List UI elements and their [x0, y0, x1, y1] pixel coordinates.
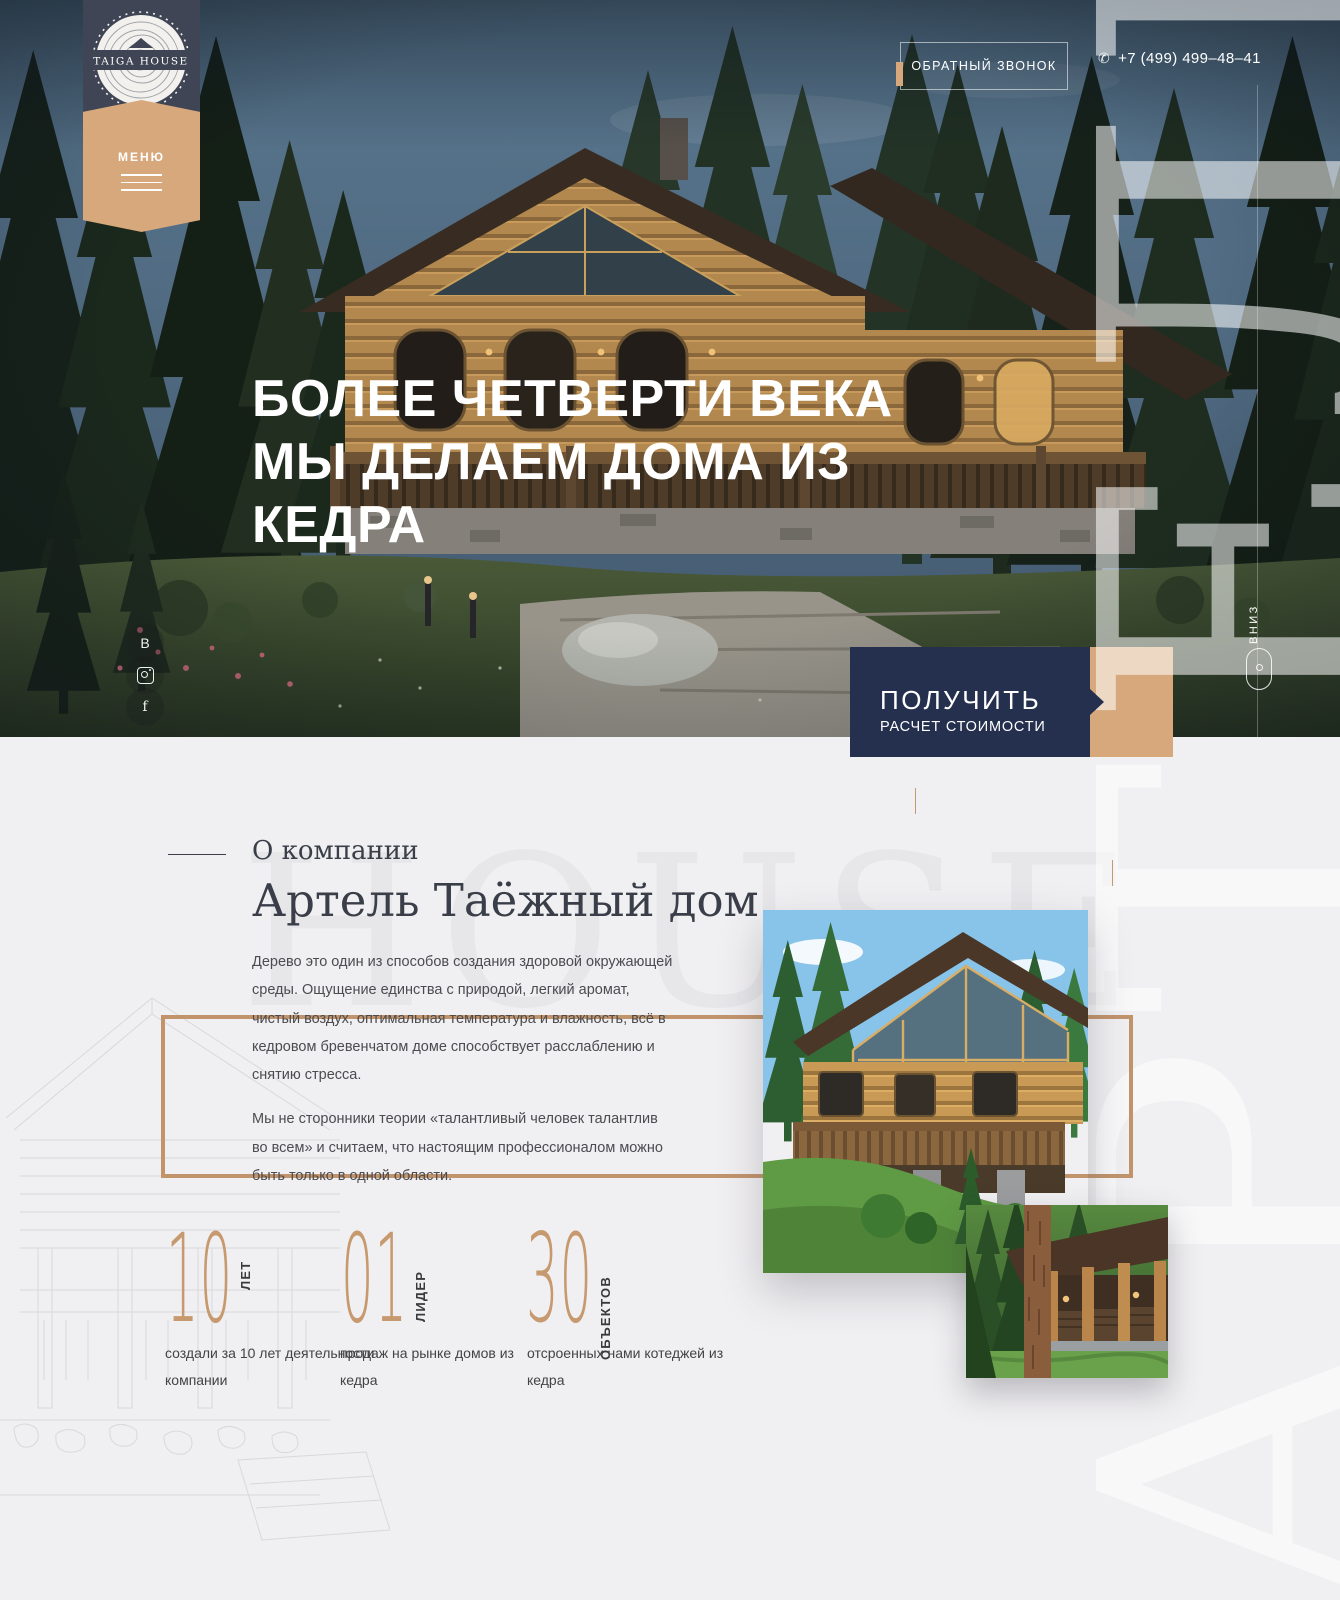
stat-unit-leader: ЛИДЕР — [413, 1240, 428, 1322]
menu-label: МЕНЮ — [83, 150, 200, 164]
logo-text: TAIGA HOUSE — [93, 56, 188, 68]
stat-value-objects: 30 — [526, 1218, 593, 1340]
hamburger-icon — [121, 174, 162, 197]
callback-accent-bar — [896, 62, 903, 86]
stat-value-years: 10 — [166, 1218, 233, 1340]
about-text: Дерево это один из способов создания здо… — [252, 948, 676, 1206]
about-paragraph: Мы не сторонники теории «талантливый чел… — [252, 1105, 676, 1190]
eyebrow-line — [168, 854, 226, 855]
menu-button[interactable]: МЕНЮ — [83, 100, 200, 232]
section-eyebrow: О компании — [252, 836, 419, 866]
decor-tick — [915, 788, 916, 814]
cta-line1: ПОЛУЧИТЬ — [880, 685, 1041, 716]
stat-caption-leader: продаж на рынке домов из кедра — [340, 1340, 555, 1393]
landing-page: TAIGA HOUSE МЕНЮ ОБРАТНЫЙ ЗВОНОК ✆ +7 (4… — [0, 0, 1340, 1600]
about-paragraph: Дерево это один из способов создания здо… — [252, 948, 676, 1089]
about-photo-secondary — [966, 1205, 1168, 1378]
facebook-icon[interactable]: f — [126, 688, 164, 726]
stat-caption-objects: отсроенных нами котеджей из кедра — [527, 1340, 742, 1393]
arrow-right-icon — [1090, 689, 1104, 715]
decor-tick — [1112, 860, 1113, 886]
about-heading: Артель Таёжный дом — [252, 874, 759, 927]
hero-title: БОЛЕЕ ЧЕТВЕРТИ ВЕКА МЫ ДЕЛАЕМ ДОМА ИЗ КЕ… — [252, 368, 952, 557]
stat-unit-years: ЛЕТ — [238, 1240, 253, 1290]
stat-value-leader: 01 — [341, 1218, 408, 1340]
